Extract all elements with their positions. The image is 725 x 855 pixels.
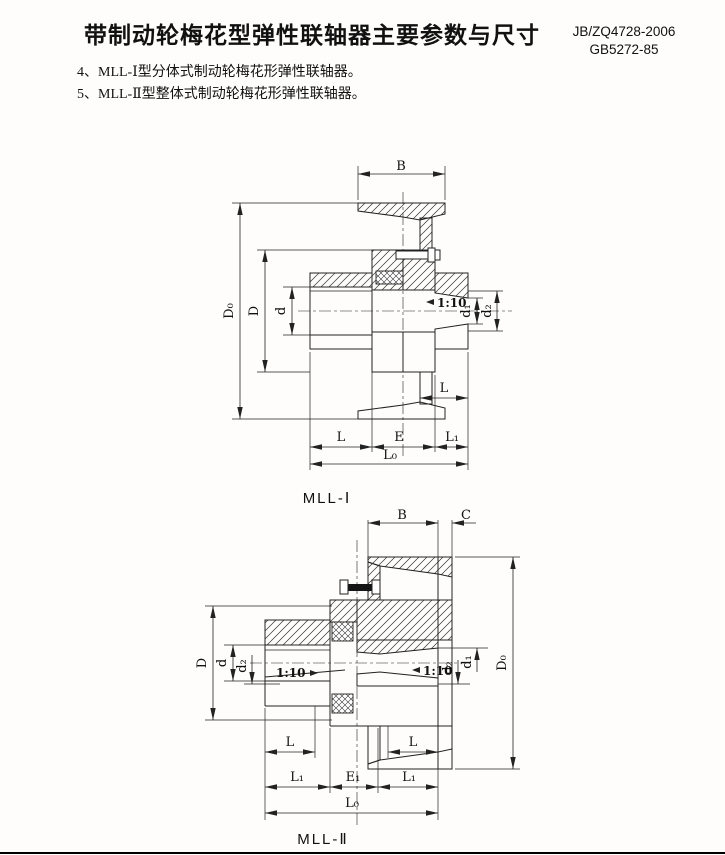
dim-label-d-cap: D — [247, 306, 262, 316]
dim-label-d2-left: d₂ — [235, 659, 250, 673]
dim-label-L-wheel: L — [440, 381, 449, 396]
mll1-dim-L-wheel-hub: L — [420, 380, 468, 404]
mll1-bottom-dims: L E L₁ L₀ — [310, 352, 468, 470]
dim-label-L0-2: L₀ — [345, 796, 359, 811]
dim-label-d-small: d — [274, 307, 289, 315]
mll2-dim-B: B — [368, 508, 452, 557]
dim-label-b2: B — [397, 508, 407, 523]
mll2-elastomer-spider-bottom — [332, 694, 353, 713]
standard-references: JB/ZQ4728-2006 GB5272-85 — [552, 23, 696, 59]
mll1-caption: MLL-Ⅰ — [272, 489, 382, 507]
dim-label-b: B — [396, 159, 406, 174]
dim-label-D2: D — [195, 658, 210, 668]
page-title: 带制动轮梅花型弹性联轴器主要参数与尺寸 — [84, 16, 540, 50]
dim-label-d2-right: d₂ — [441, 661, 456, 675]
standard-gb: GB5272-85 — [552, 41, 696, 59]
dim-label-L1: L₁ — [445, 430, 459, 445]
dim-label-L-right: L — [409, 735, 418, 750]
mll1-technical-drawing: B D₀ D d 1:10 d₁ d₂ — [150, 150, 570, 520]
mll2-taper-left: 1:10 — [276, 666, 318, 680]
dim-label-d2: d₂ — [480, 304, 495, 318]
mll2-dim-C: C — [452, 508, 476, 523]
notes-list: 4、MLL-Ⅰ型分体式制动轮梅花形弹性联轴器。 5、MLL-Ⅱ型整体式制动轮梅花… — [77, 62, 366, 106]
mll2-bottom-dims: L L L₁ E₁ L₁ L₀ — [265, 706, 438, 820]
note-item-5: 5、MLL-Ⅱ型整体式制动轮梅花形弹性联轴器。 — [77, 84, 366, 106]
dim-label-E: E — [394, 430, 404, 445]
page-bottom-rule — [0, 852, 725, 854]
mll2-caption: MLL-Ⅱ — [268, 830, 378, 848]
mll1-dim-B: B — [358, 159, 445, 200]
dim-label-c: C — [461, 508, 471, 523]
dim-label-d0: D₀ — [222, 303, 237, 319]
dim-label-E1: E₁ — [346, 770, 361, 785]
mll2-technical-drawing: 1:10 1:10 B C D d d₂ d₂ — [150, 510, 570, 845]
dim-label-d1-2: d₁ — [460, 655, 475, 669]
dim-label-L1-right: L₁ — [402, 770, 416, 785]
dim-label-d0-2: D₀ — [495, 655, 510, 671]
dim-label-L: L — [337, 430, 346, 445]
dim-label-d-small2: d — [215, 659, 230, 667]
dim-label-L-left: L — [286, 735, 295, 750]
mll1-dim-D0: D₀ — [222, 203, 358, 419]
note-item-4: 4、MLL-Ⅰ型分体式制动轮梅花形弹性联轴器。 — [77, 62, 366, 84]
standard-jb: JB/ZQ4728-2006 — [552, 23, 696, 41]
mll2-flange-bolt — [340, 580, 380, 594]
dim-label-L0: L₀ — [383, 448, 397, 463]
dim-label-L1-left: L₁ — [290, 770, 304, 785]
taper-label-left: 1:10 — [276, 666, 305, 680]
mll1-elastomer-spider — [376, 271, 403, 284]
mll2-dim-d2-left: d₂ — [235, 655, 280, 684]
mll2-elastomer-spider-top — [332, 622, 353, 641]
dim-label-d1: d₁ — [459, 304, 474, 318]
